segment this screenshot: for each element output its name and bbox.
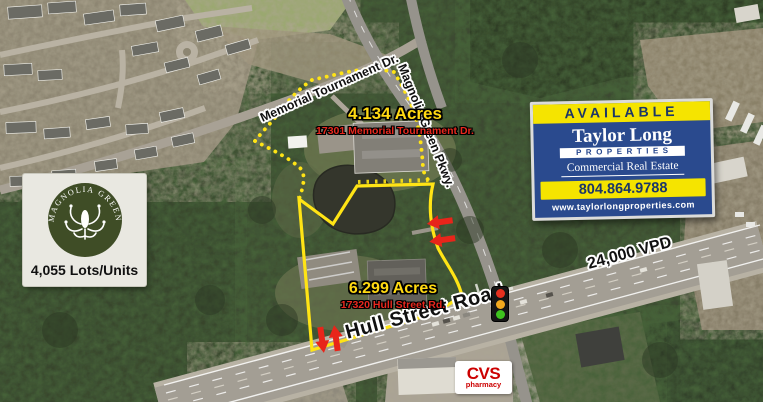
availability-sign: AVAILABLE Taylor Long PROPERTIES Commerc… [530,98,715,221]
traffic-light-green [496,310,505,319]
sign-company-division: PROPERTIES [560,146,685,159]
sign-company-name: Taylor Long [533,123,710,148]
traffic-light-amber [496,300,505,309]
access-point-arrows-icon [424,211,459,251]
parcel-address: 17320 Hull Street Rd. [308,299,478,311]
lots-units-stat: 4,055 Lots/Units [31,262,138,278]
access-point-arrows-icon [313,322,345,356]
community-info-box: MAGNOLIA GREEN 4,055 Lots/Units [23,174,146,286]
sign-website: www.taylorlongproperties.com [535,198,712,214]
cvs-pharmacy-logo: CVS pharmacy [455,361,512,394]
parcel-label-6-acres: 6.299 Acres 17320 Hull Street Rd. [308,280,478,311]
traffic-light-icon [491,286,509,322]
parcel-acreage: 6.299 Acres [308,280,478,298]
cvs-pharmacy-label: pharmacy [466,381,501,389]
sign-company-tagline: Commercial Real Estate [561,159,685,178]
parcel-address: 17301 Memorial Tournament Dr. [310,125,480,137]
parcel-label-4-acres: 4.134 Acres 17301 Memorial Tournament Dr… [310,104,480,137]
sign-phone-number: 804.864.9788 [540,178,705,199]
magnolia-green-logo: MAGNOLIA GREEN [45,179,125,261]
sign-available-banner: AVAILABLE [533,101,710,124]
cvs-name: CVS [467,366,500,381]
aerial-property-flyer: Memorial Tournament Dr. Magnolia Green P… [0,0,763,402]
traffic-light-red [496,289,505,298]
parcel-acreage: 4.134 Acres [310,104,480,124]
